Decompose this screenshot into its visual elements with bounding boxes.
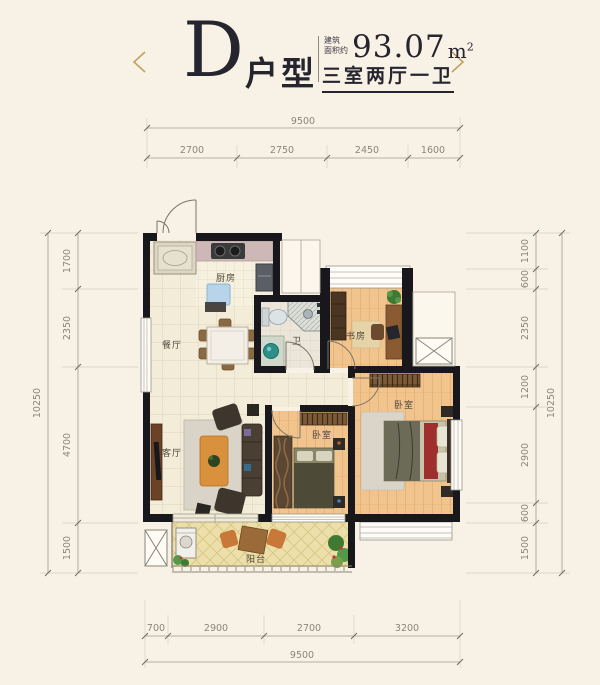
balcony-table [238, 526, 268, 554]
dim-bottom-seg-3: 3200 [395, 623, 419, 634]
floor-plan-canvas: 餐厅 厨房 卫 书房 卧室 卧室 客厅 阳台 [0, 0, 600, 685]
sink-bowl [264, 344, 279, 359]
master-bay-window [360, 522, 452, 540]
master-side-window [451, 420, 462, 490]
dim-right-seg-6: 1500 [520, 536, 531, 560]
dim-right-seg-4: 2900 [520, 443, 531, 467]
entrance-door [157, 200, 196, 233]
label-bathroom: 卫 [292, 337, 302, 347]
label-second-bedroom: 卧室 [312, 429, 332, 441]
label-master-bedroom: 卧室 [394, 399, 414, 411]
label-study: 书房 [346, 330, 366, 342]
dimensions-bottom: 700 2900 2700 3200 9500 [142, 600, 463, 668]
desk-chair [371, 324, 384, 340]
dim-left-seg-0: 1700 [62, 249, 73, 273]
label-balcony: 阳台 [246, 553, 266, 565]
label-dining: 餐厅 [162, 339, 182, 351]
flue-bottom-left [145, 530, 167, 566]
dim-right-seg-5: 600 [520, 504, 531, 522]
nightstand [441, 406, 453, 417]
dim-left-seg-3: 1500 [62, 536, 73, 560]
dining-set [199, 319, 255, 370]
flue-right [416, 338, 452, 364]
dim-bottom-seg-0: 700 [147, 623, 165, 634]
dimensions-top: 9500 2700 2750 2450 1600 [144, 116, 463, 168]
dim-bottom-seg-2: 2700 [297, 623, 321, 634]
toilet-tank [262, 308, 269, 326]
dim-top-total: 9500 [291, 116, 315, 127]
dim-top-seg-1: 2750 [270, 145, 294, 156]
dining-table [207, 327, 248, 364]
dim-top-seg-0: 2700 [180, 145, 204, 156]
dim-bottom-total: 9500 [290, 650, 314, 661]
dim-right-total: 10250 [546, 388, 557, 418]
master-wardrobe [370, 374, 420, 387]
second-bedroom-window [272, 514, 345, 522]
entry-doormat [154, 242, 196, 274]
dim-left-total: 10250 [32, 388, 43, 418]
dimensions-right: 1100 600 2350 1200 2900 600 1500 10250 [466, 230, 570, 576]
shower-head [304, 310, 313, 319]
dim-right-seg-3: 1200 [520, 375, 531, 399]
dim-top-seg-2: 2450 [355, 145, 379, 156]
dim-left-seg-2: 4700 [62, 433, 73, 457]
label-kitchen: 厨房 [216, 272, 236, 284]
kitchen-cabinet [207, 284, 230, 305]
toilet-bowl [269, 310, 287, 325]
dimensions-left: 1700 2350 4700 1500 10250 [32, 230, 138, 576]
dining-window [141, 318, 151, 392]
study-bay-window [326, 266, 410, 288]
dim-right-seg-1: 600 [520, 270, 531, 288]
dim-bottom-seg-1: 2900 [204, 623, 228, 634]
fridge [256, 264, 273, 291]
dim-right-seg-2: 2350 [520, 316, 531, 340]
second-wardrobe [300, 413, 347, 425]
dim-right-seg-0: 1100 [520, 239, 531, 263]
floorplan-page: D 户型 建筑 面积约 93.07 m2 三室两厅一卫 [0, 0, 600, 685]
label-living: 客厅 [162, 447, 182, 459]
dim-top-seg-3: 1600 [421, 145, 445, 156]
dim-left-seg-1: 2350 [62, 316, 73, 340]
side-table [247, 404, 259, 416]
